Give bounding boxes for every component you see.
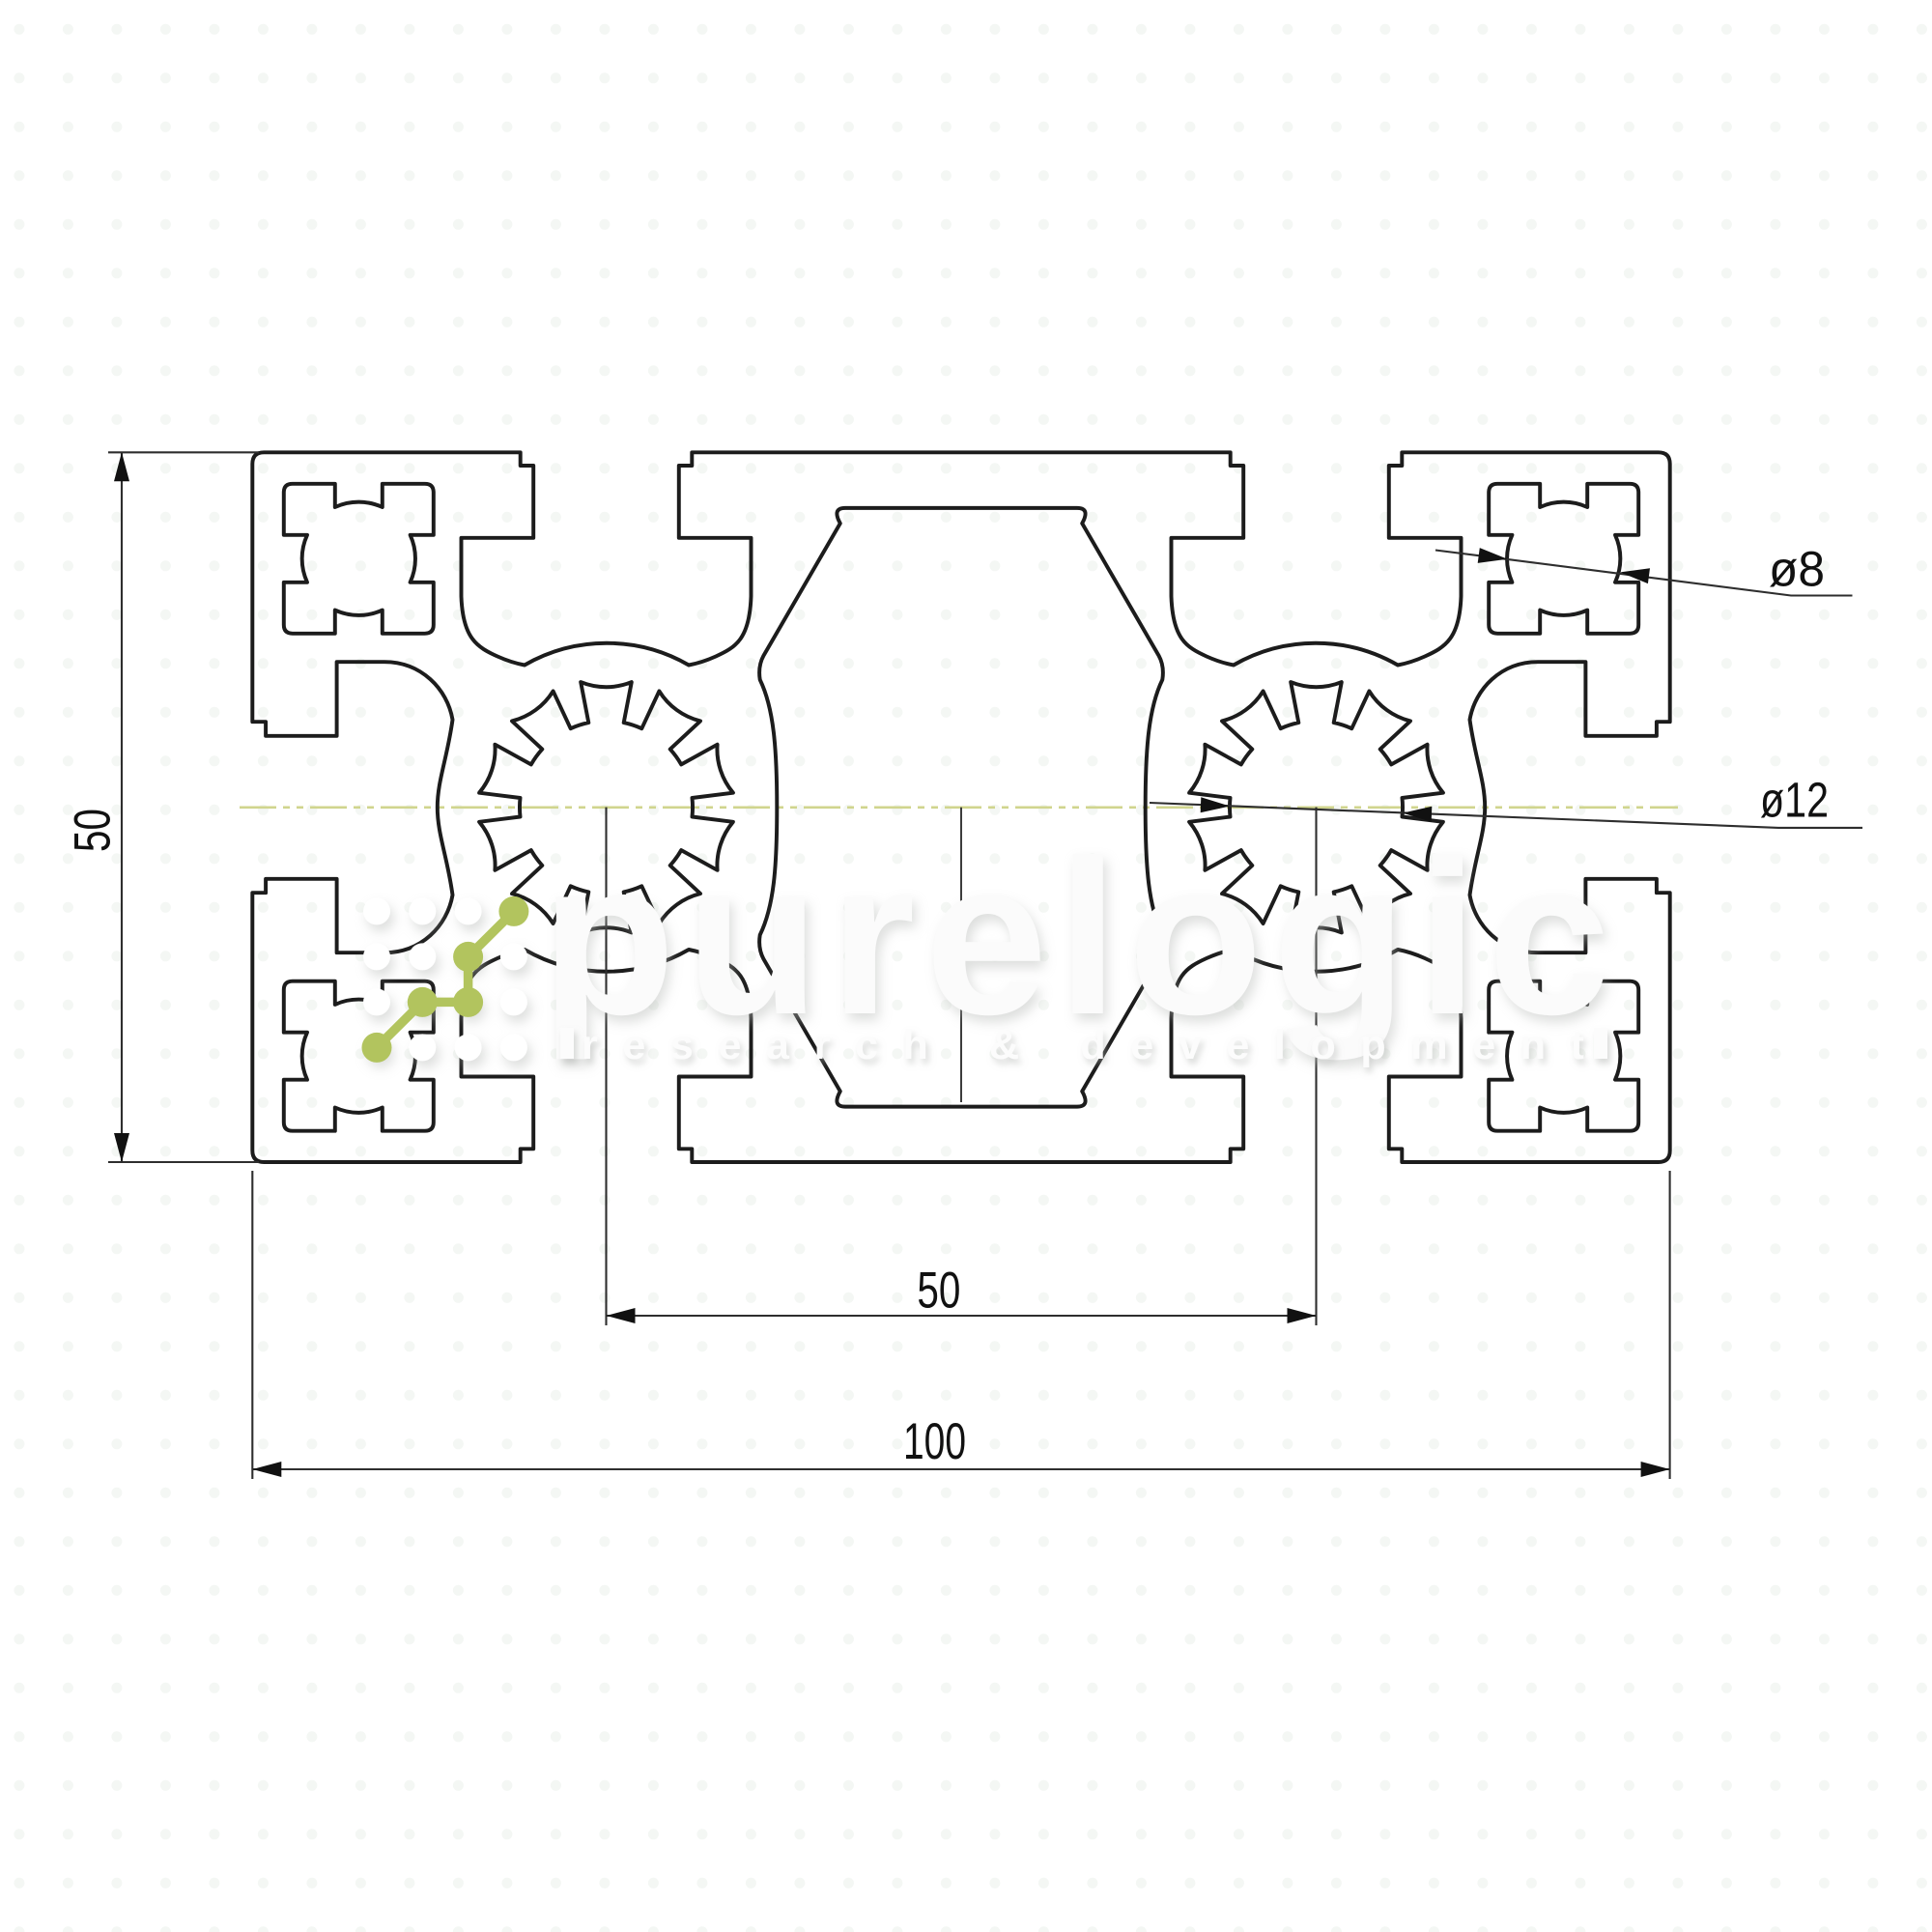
svg-text:50: 50 (65, 809, 122, 852)
svg-text:purelogic: purelogic (541, 815, 1608, 1061)
svg-text:ø8: ø8 (1769, 542, 1825, 597)
svg-text:50: 50 (917, 1263, 960, 1320)
svg-text:research & development: research & development (582, 1022, 1584, 1068)
svg-text:100: 100 (903, 1413, 966, 1470)
svg-text:ø12: ø12 (1760, 773, 1829, 828)
